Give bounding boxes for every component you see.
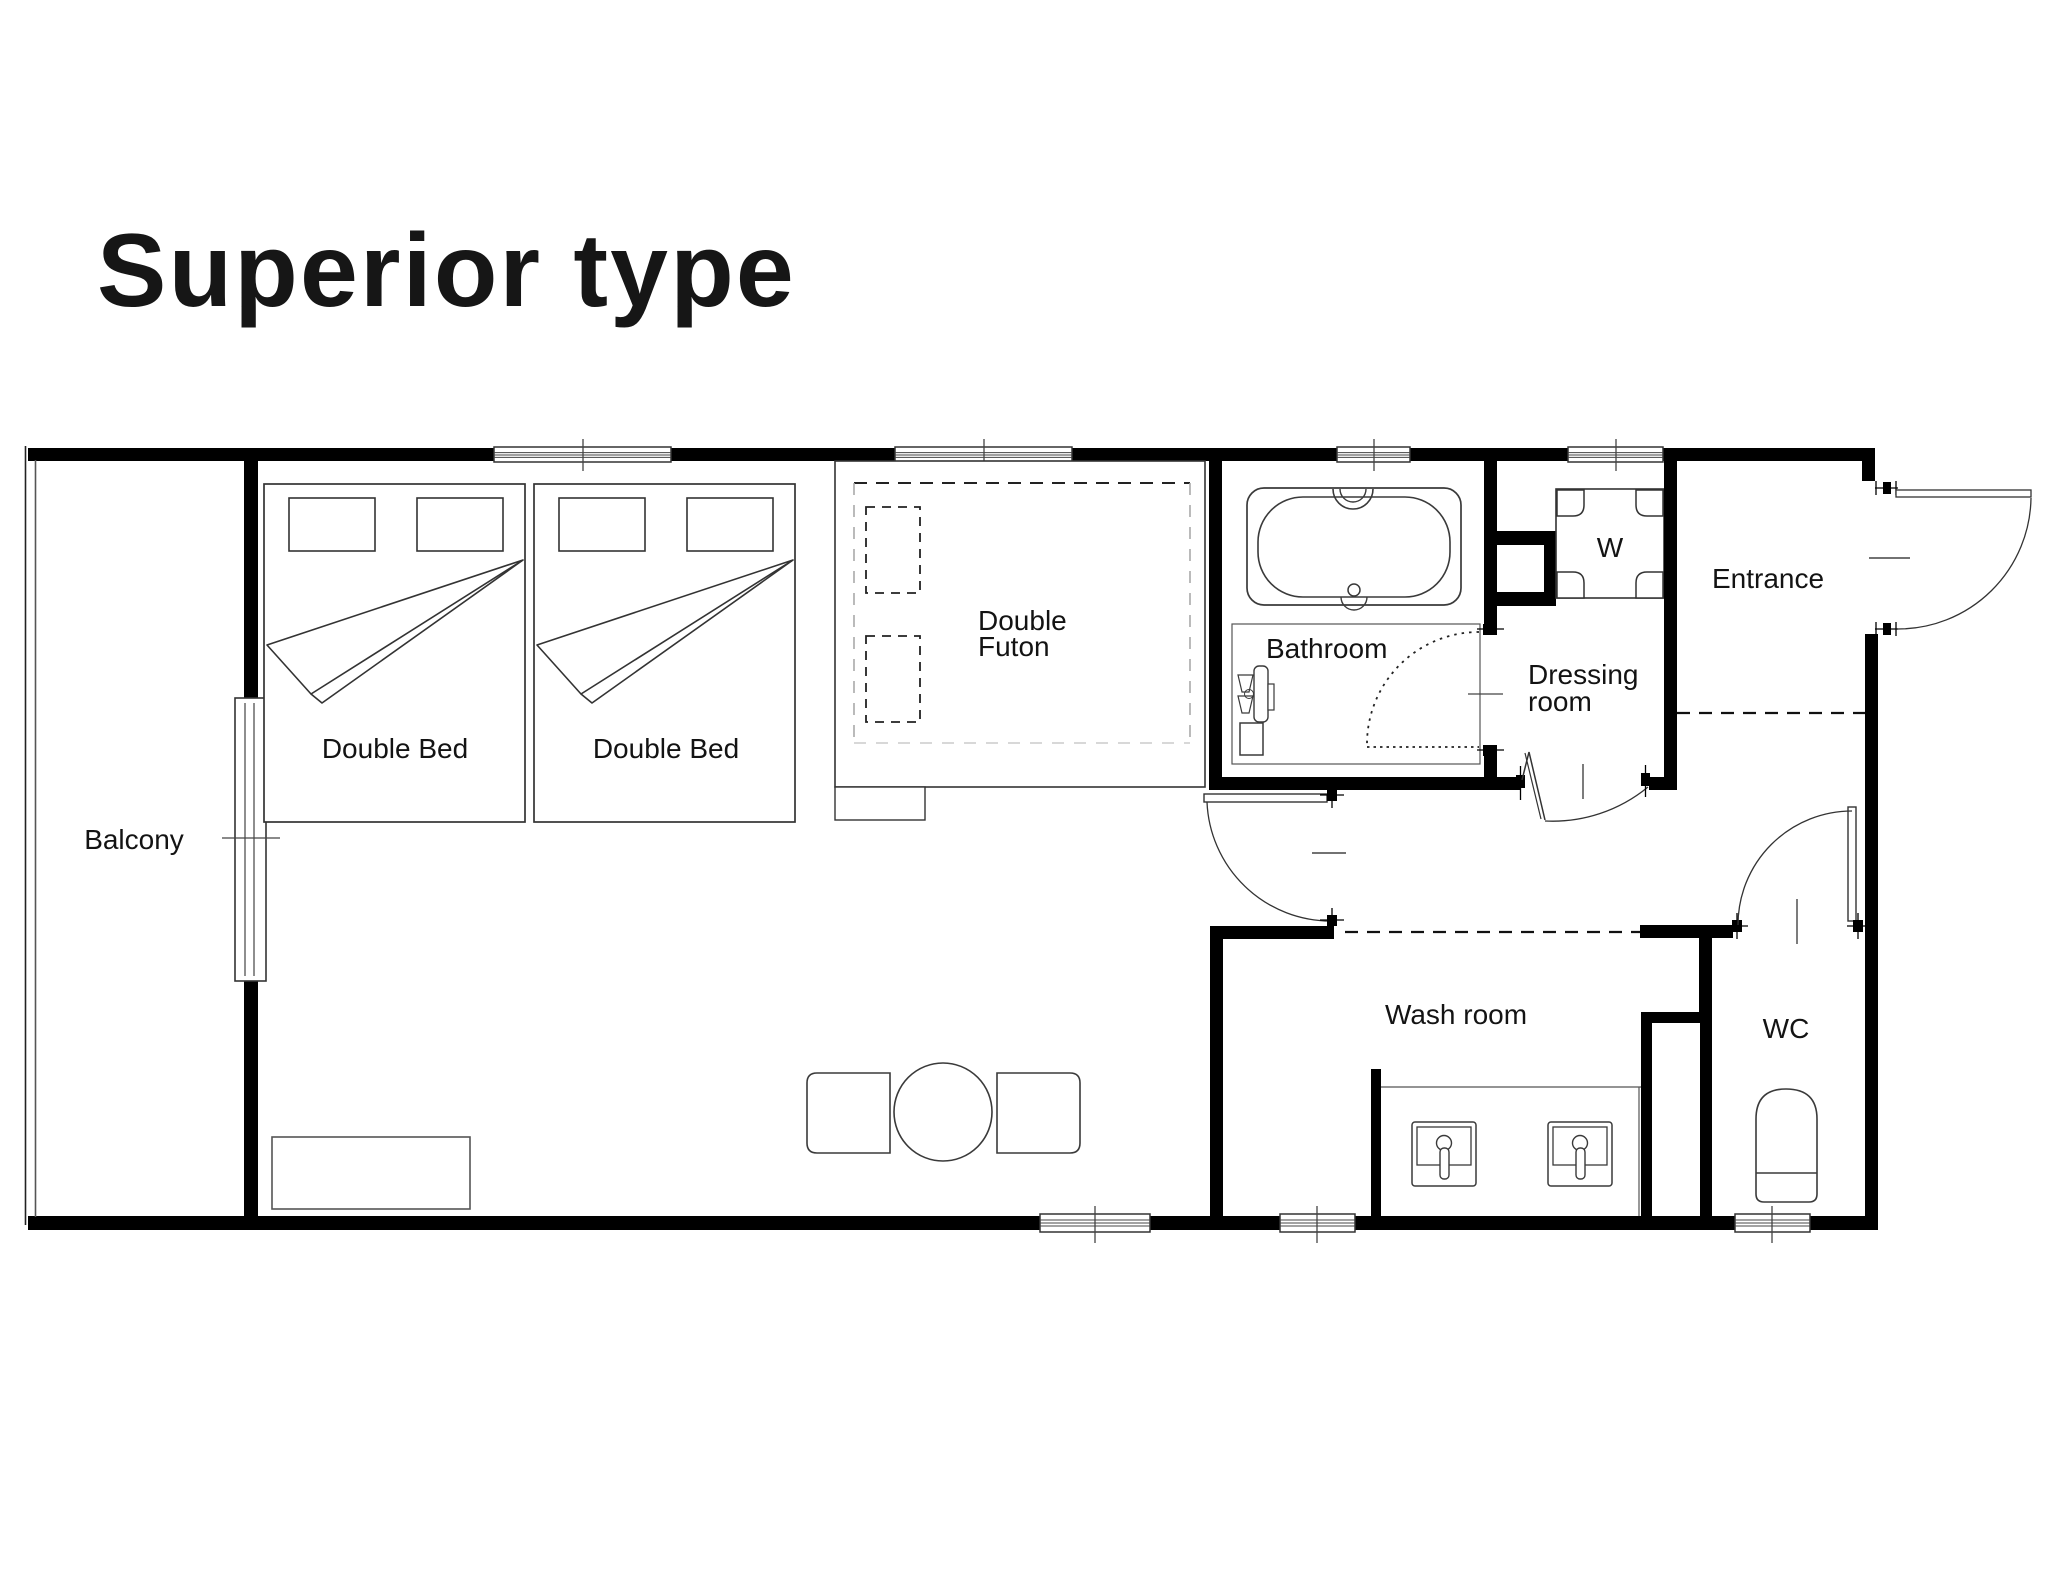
svg-text:Entrance: Entrance	[1712, 563, 1824, 594]
svg-text:Wash room: Wash room	[1385, 999, 1527, 1030]
svg-text:Double Bed: Double Bed	[593, 733, 739, 764]
svg-text:Futon: Futon	[978, 631, 1050, 662]
svg-text:W: W	[1597, 532, 1624, 563]
svg-text:WC: WC	[1763, 1013, 1810, 1044]
svg-text:Double Bed: Double Bed	[322, 733, 468, 764]
svg-text:Bathroom: Bathroom	[1266, 633, 1387, 664]
svg-text:Balcony: Balcony	[84, 824, 184, 855]
svg-text:Superior type: Superior type	[97, 213, 796, 329]
svg-text:room: room	[1528, 686, 1592, 717]
